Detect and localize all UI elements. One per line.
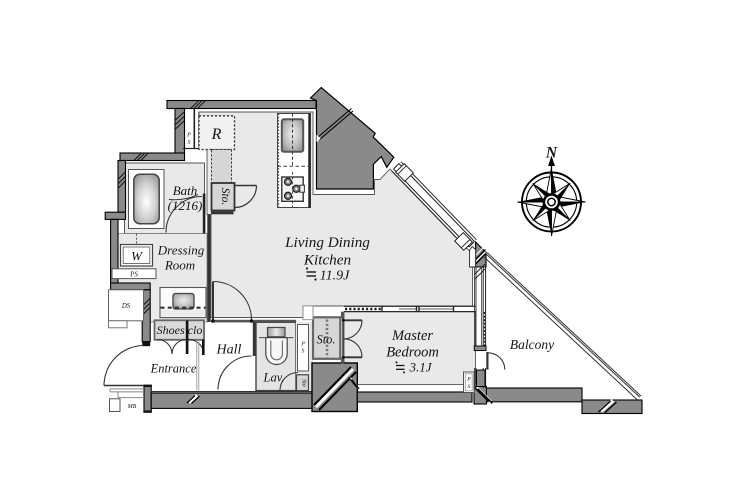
svg-text:PS: PS [129, 271, 138, 279]
svg-text:Entrance: Entrance [150, 362, 197, 376]
svg-text:(1216): (1216) [168, 198, 203, 213]
svg-text:Shoes clo: Shoes clo [157, 323, 203, 337]
svg-text:3.1J: 3.1J [408, 360, 432, 375]
svg-text:Kitchen: Kitchen [303, 252, 351, 269]
svg-text:Room: Room [164, 258, 195, 273]
svg-text:Bedroom: Bedroom [386, 345, 439, 361]
svg-text:Master: Master [391, 328, 433, 344]
svg-text:P: P [466, 377, 471, 383]
svg-text:Dressing: Dressing [157, 243, 205, 258]
svg-text:Hall: Hall [216, 343, 242, 358]
svg-text:S: S [188, 140, 191, 146]
svg-text:11.9J: 11.9J [320, 269, 350, 284]
svg-text:Lav.: Lav. [263, 371, 285, 385]
svg-text:Sto.: Sto. [219, 188, 231, 206]
svg-text:Sto.: Sto. [316, 333, 335, 347]
svg-text:Sto: Sto [301, 379, 307, 387]
svg-text:P: P [300, 342, 305, 348]
svg-text:W: W [131, 249, 143, 264]
svg-text:P: P [186, 133, 191, 139]
svg-text:DS: DS [121, 303, 131, 310]
svg-text:MB: MB [127, 404, 137, 410]
svg-text:S: S [302, 349, 305, 355]
svg-text:S: S [468, 384, 471, 390]
svg-text:Balcony: Balcony [510, 337, 554, 352]
svg-text:N: N [545, 145, 558, 162]
svg-text:Living Dining: Living Dining [284, 234, 370, 251]
svg-text:Bath: Bath [173, 183, 198, 198]
svg-text:R: R [211, 126, 222, 143]
